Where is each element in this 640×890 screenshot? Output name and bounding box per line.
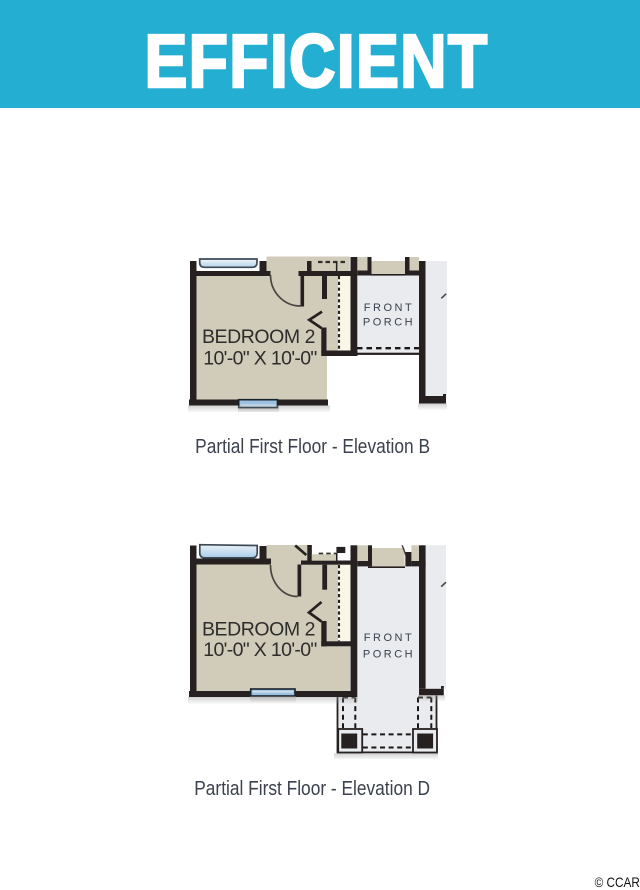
svg-text:PORCH: PORCH xyxy=(363,317,415,329)
svg-text:10'-0" X 10'-0": 10'-0" X 10'-0" xyxy=(203,347,317,369)
svg-text:PORCH: PORCH xyxy=(363,648,415,660)
svg-text:BEDROOM 2: BEDROOM 2 xyxy=(202,619,315,641)
svg-text:10'-0" X 10'-0": 10'-0" X 10'-0" xyxy=(203,639,317,661)
svg-text:BEDROOM 2: BEDROOM 2 xyxy=(202,326,315,348)
svg-text:FRONT: FRONT xyxy=(364,632,414,644)
svg-text:FRONT: FRONT xyxy=(364,302,414,314)
